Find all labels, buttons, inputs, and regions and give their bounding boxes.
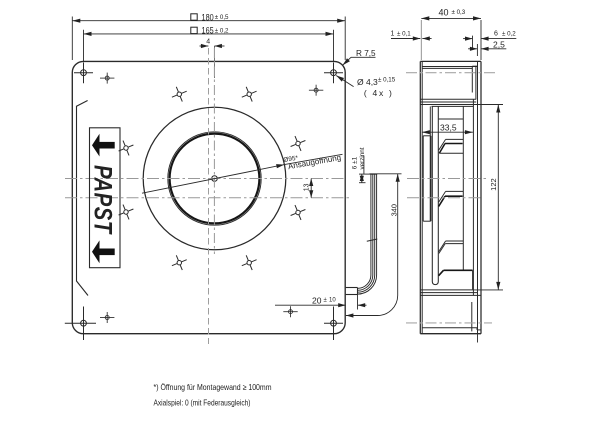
- svg-text:Ø 4,3: Ø 4,3: [357, 77, 378, 87]
- svg-text:40: 40: [439, 8, 449, 18]
- svg-text:±: ±: [324, 298, 328, 304]
- svg-text:1: 1: [391, 30, 395, 37]
- svg-text:20: 20: [312, 295, 322, 305]
- svg-text:33,5: 33,5: [440, 123, 457, 133]
- svg-text:6 ±1: 6 ±1: [352, 156, 359, 169]
- svg-text:±: ±: [215, 27, 219, 34]
- svg-text:± 0,2: ± 0,2: [502, 31, 516, 38]
- svg-text:122: 122: [489, 178, 498, 191]
- svg-text:± 0,15: ± 0,15: [378, 77, 396, 84]
- svg-text:6: 6: [494, 31, 498, 38]
- svg-text:13: 13: [303, 183, 310, 191]
- svg-text:4: 4: [206, 39, 210, 46]
- svg-text:PAPST: PAPST: [89, 165, 116, 235]
- svg-text:( 4x ): ( 4x ): [364, 88, 392, 98]
- svg-text:±: ±: [215, 14, 219, 21]
- svg-text:0,2: 0,2: [220, 27, 229, 34]
- svg-text:± 0,3: ± 0,3: [452, 9, 466, 16]
- svg-text:0,5: 0,5: [220, 14, 229, 21]
- svg-text:± 0,1: ± 0,1: [397, 30, 411, 37]
- svg-text:Axialspiel: 0 (mit Federausg: Axialspiel: 0 (mit Federausgleich): [154, 398, 251, 408]
- svg-text:verzinnt: verzinnt: [359, 147, 366, 169]
- svg-text:180: 180: [202, 12, 214, 22]
- svg-text:165: 165: [202, 26, 214, 36]
- svg-text:2,5: 2,5: [493, 39, 505, 49]
- svg-text:10: 10: [329, 298, 336, 304]
- svg-text:340: 340: [390, 204, 399, 216]
- svg-text:*) Öffnung für Montagewand ≥: *) Öffnung für Montagewand ≥ 100mm: [154, 382, 272, 392]
